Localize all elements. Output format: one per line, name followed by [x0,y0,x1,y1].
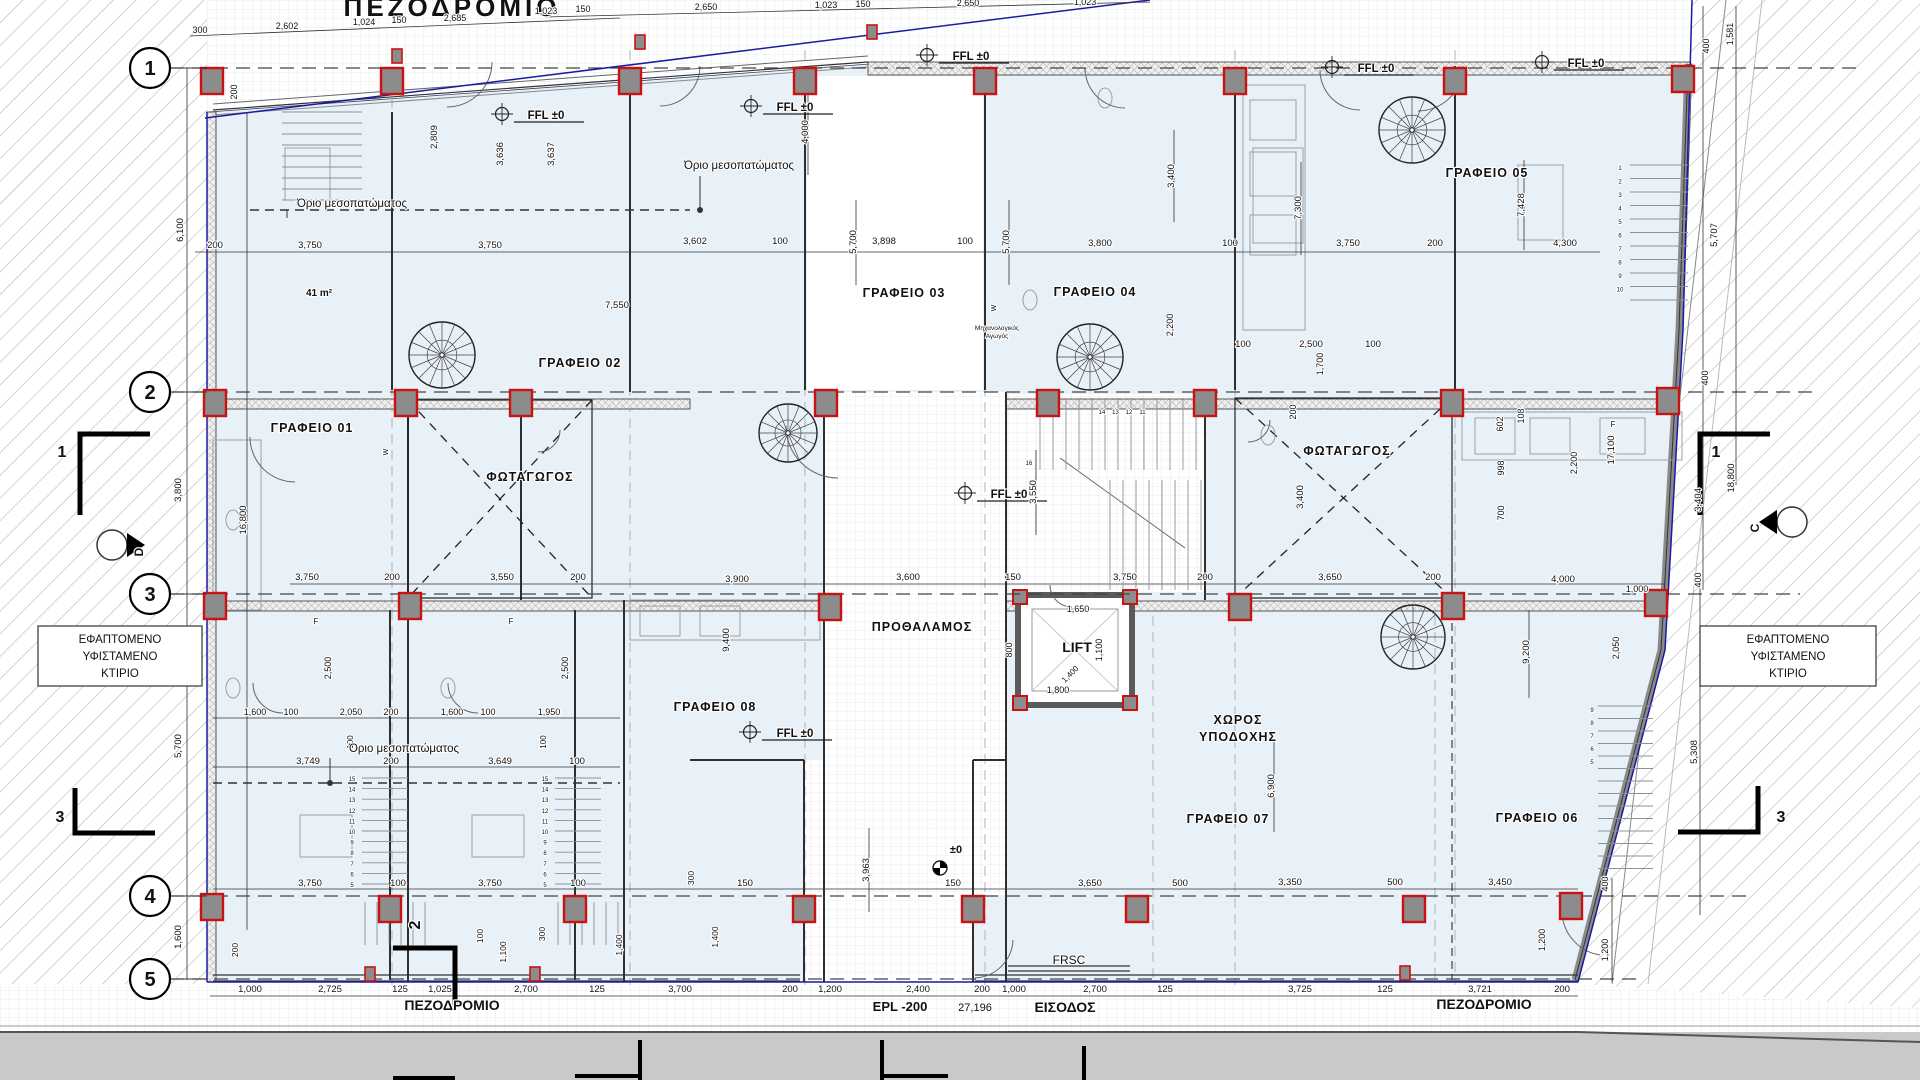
column [204,593,226,619]
dim-label: 150 [737,878,753,889]
dim-label: 3,721 [1468,984,1492,995]
dim-label: 1,023 [815,0,838,10]
dim-label: 1,200 [818,984,842,995]
dim-label: 125 [589,984,605,995]
dim-label: 2,500 [323,657,333,680]
column [379,896,401,922]
adjacent-building-label: ΥΦΙΣΤΑΜΕΝΟ [1751,651,1826,663]
column-small [530,967,540,981]
stair-number: 10 [349,830,356,836]
dim-label: 3,400 [1166,164,1177,188]
dim-label: 4,000 [800,120,811,144]
dim-label: 1,025 [428,984,452,995]
dim-label: 300 [686,871,696,885]
dim-label: F [509,617,514,626]
dim-label: 108 [1516,408,1526,423]
column [974,68,996,94]
dim-label: 1,400 [614,934,624,956]
floor-plan-drawing: 12345 1514131211109876515141312111098765… [0,0,1920,1080]
column [1126,896,1148,922]
dim-label: 200 [384,572,400,583]
mezzanine-note: Όριο μεσοπατώματος [683,160,795,172]
dim-label: 1,023 [1074,0,1097,7]
dim-label: 3,725 [1288,984,1312,995]
dim-label: 400 [1700,370,1710,385]
column [819,594,841,620]
spiral-stair [1057,324,1123,390]
dim-label: 300 [537,927,547,941]
dim-label: 150 [575,4,590,14]
dim-label: 125 [1377,984,1393,995]
dim-label: 6,100 [175,218,186,242]
level-label: FFL ±0 [528,110,565,122]
dim-label: 1,100 [498,941,508,963]
level-label: FFL ±0 [991,489,1028,501]
column [1560,893,1582,919]
dim-label: 2,200 [1165,314,1175,337]
dim-label: 2,602 [276,21,299,31]
level-label: FFL ±0 [1358,63,1395,75]
dim-label: 2,050 [1611,637,1621,660]
dim-label: 3,650 [1078,878,1102,889]
stair-number: 10 [1617,288,1624,294]
dim-label: F [1611,420,1616,429]
dim-label: 3,350 [1278,877,1302,888]
column [564,896,586,922]
dim-label: 100 [283,707,298,717]
column [1037,390,1059,416]
column [1441,390,1463,416]
street-label-br: ΠΕΖΟΔΡΟΜΙΟ [1436,996,1531,1012]
dim-label: 2,685 [444,13,467,23]
column [962,896,984,922]
dim-label: 3,602 [683,236,707,247]
dim-label: 2,700 [514,984,538,995]
dim-label: 1,650 [1067,604,1090,614]
dim-label: 1,800 [1047,685,1070,695]
svg-text:1: 1 [144,58,155,80]
column [381,68,403,94]
dim-label: 2,200 [1569,452,1579,475]
dim-label: 3,700 [668,984,692,995]
dim-label: 125 [392,984,408,995]
duct-note: Αγωγός [986,332,1009,340]
spiral-stair [759,404,817,462]
dim-label: 2,050 [340,707,363,717]
dim-label: 200 [1425,572,1441,583]
mezzanine-note: Όριο μεσοπατώματος [296,198,408,210]
dim-label: 200 [383,756,399,767]
dim-label: 400 [1600,876,1610,891]
dim-label: 5,700 [848,230,859,254]
dim-label: 3,750 [478,878,502,889]
dim-label: 200 [207,240,223,251]
spiral-stair [409,322,475,388]
street-label-bl: ΠΕΖΟΔΡΟΜΙΟ [404,997,499,1013]
dim-label: 150 [391,15,406,25]
dim-label: 3,749 [296,756,320,767]
dim-label: 3,800 [1088,238,1112,249]
level-label: FFL ±0 [777,728,814,740]
adjacent-building-label: ΕΦΑΠΤΟΜΕΝΟ [1747,634,1830,646]
stair-number: 15 [349,777,356,783]
dim-label: 100 [1235,339,1251,350]
room-label: ΓΡΑΦΕΙΟ 06 [1496,811,1579,825]
dim-label: 3,963 [861,858,872,882]
dim-label: 1,600 [244,707,267,717]
column [1403,896,1425,922]
dim-label: 9,400 [721,628,732,652]
dim-label: 3,750 [295,572,319,583]
room-label: ΓΡΑΦΕΙΟ 08 [674,700,757,714]
dim-label: 200 [1288,404,1298,419]
dim-label: 2,700 [1083,984,1107,995]
column [794,68,816,94]
dim-label: 1,200 [1537,929,1547,952]
column [1444,68,1466,94]
dim-label: 1,000 [1626,584,1649,594]
column [793,896,815,922]
duct-note: Μηχανολογικός [975,324,1019,332]
stair-number: 11 [1139,410,1146,416]
dim-label: 3,750 [478,240,502,251]
dim-label: 1,400 [710,926,720,948]
dim-label: 2,650 [957,0,980,8]
dim-label: 3,400 [1295,485,1306,509]
column-small [392,49,402,63]
column [1229,594,1251,620]
dim-label: 7,428 [1516,193,1527,217]
column [201,894,223,920]
dim-label: 500 [1387,877,1403,888]
dim-label: 3,800 [173,478,184,502]
dim-label: 100 [1365,339,1381,350]
dim-label: 800 [1004,642,1014,657]
dim-label: 3,636 [495,142,506,166]
dim-label: 3,900 [725,574,749,585]
adjacent-building-label: ΥΦΙΣΤΑΜΕΝΟ [83,651,158,663]
dim-label: 3,637 [546,142,557,166]
room-label: ΦΩΤΑΓΩΓΟΣ [486,470,573,484]
column-small [1400,966,1410,980]
stair-number: 12 [349,809,356,815]
adjacent-building-label: ΚΤΙΡΙΟ [1769,668,1807,680]
dim-label: 300 [192,25,207,35]
dim-label: 3,450 [1488,877,1512,888]
stair-number: 13 [1112,410,1119,416]
dim-label: 100 [480,707,495,717]
column [1657,388,1679,414]
frsc-label: FRSC [1053,953,1086,967]
dim-label: 400 [1701,38,1711,53]
dim-label: 150 [1005,572,1021,583]
column-small [365,967,375,981]
dim-label: 200 [1197,572,1213,583]
dim-label: 5,700 [1001,230,1012,254]
adjacent-building-label: ΚΤΙΡΙΟ [101,668,139,680]
room-label: ΦΩΤΑΓΩΓΟΣ [1303,444,1390,458]
dim-label: 150 [855,0,870,9]
dim-label: 1,023 [535,6,558,16]
column [204,390,226,416]
stair-number: 11 [349,819,356,825]
dim-label: 100 [570,878,586,889]
section-number: 1 [1712,444,1721,461]
dim-label: 200 [383,707,398,717]
dim-label: 1,024 [353,17,376,27]
dim-label: 1,200 [1600,939,1610,962]
dim-label: 1,100 [1094,639,1104,662]
svg-text:5: 5 [144,969,155,991]
dim-label: 200 [974,984,990,995]
dim-label: 7,300 [1293,196,1304,220]
dim-label: 4,300 [1553,238,1577,249]
room-label: ΓΡΑΦΕΙΟ 04 [1054,285,1137,299]
road [0,1032,1920,1080]
dim-label: 700 [1496,505,1506,520]
dim-label: 5,700 [173,734,184,758]
column [399,593,421,619]
stair-number: 10 [542,830,549,836]
benchmark-marker [933,861,947,875]
level-label: FFL ±0 [777,102,814,114]
dim-label: 2,809 [429,125,440,149]
dim-label: 18,800 [1726,463,1737,492]
column-small [867,25,877,39]
dim-label: 1,000 [238,984,262,995]
dim-label: W [991,304,998,311]
dim-label: 200 [1554,984,1570,995]
svg-text:3: 3 [144,584,155,606]
column [815,390,837,416]
stair-number: 13 [349,798,356,804]
svg-text:4: 4 [144,886,156,908]
level-label: FFL ±0 [953,51,990,63]
dim-label: 500 [1172,878,1188,889]
room-label: ΓΡΑΦΕΙΟ 01 [271,421,354,435]
entrance-level-label: EPL -200 [873,999,928,1014]
dim-label: 3,600 [896,572,920,583]
column-small [635,35,645,49]
column [1442,593,1464,619]
dim-label: 100 [772,236,788,247]
stair-number: 12 [542,809,549,815]
dim-label: 200 [230,943,240,957]
dim-label: 1,581 [1725,23,1735,46]
dim-label: 16 [1026,461,1033,467]
dim-label: 5,308 [1689,740,1700,764]
stair-number: 11 [542,819,549,825]
section-number: 1 [58,444,67,461]
section-number: 2 [407,920,424,929]
spiral-stair [1379,97,1445,163]
dim-label: 602 [1495,416,1505,431]
stair-number: 13 [542,798,549,804]
room-label: ΧΩΡΟΣ [1214,713,1263,727]
spiral-stair [1381,605,1445,669]
dim-label: 125 [1157,984,1173,995]
dim-label: 100 [390,878,406,889]
stair-number: 14 [349,788,356,794]
dim-label: 1,700 [1315,353,1325,376]
section-letter: D [132,547,146,556]
room-label: ΠΡΟΘΑΛΑΜΟΣ [872,620,973,634]
dim-label: 6,900 [1266,774,1277,798]
section-number: 3 [56,809,65,826]
dim-label: 3,649 [488,756,512,767]
dim-label: 16,800 [238,505,249,534]
dim-label: 150 [945,878,961,889]
stair-number: 14 [542,788,549,794]
dim-label: 1,600 [173,925,184,949]
dim-label: 9,200 [1521,640,1532,664]
office-03-floor [807,76,983,390]
column [395,390,417,416]
room-label: ΓΡΑΦΕΙΟ 07 [1187,812,1270,826]
area-label: 41 m² [306,288,333,299]
dim-label: 1,600 [441,707,464,717]
dim-label: 17,100 [1606,435,1617,464]
section-number: 3 [1777,809,1786,826]
dim-label: 998 [1496,460,1506,475]
overall-dim: 27,196 [958,1002,992,1014]
dim-label: 3,750 [298,878,322,889]
dim-label: 2,500 [560,657,570,680]
dim-label: 5,707 [1709,223,1720,247]
adjacent-building-label: ΕΦΑΠΤΟΜΕΝΟ [79,634,162,646]
dim-label: 7,550 [605,300,629,311]
dim-label: 200 [570,572,586,583]
dim-label: 100 [475,929,485,943]
dim-label: W [383,448,390,455]
room-label: ΓΡΑΦΕΙΟ 02 [539,356,622,370]
column [1645,590,1667,616]
dim-label: 1,950 [538,707,561,717]
dim-label: 3,750 [298,240,322,251]
entrance-floor [804,760,973,982]
room-label: ΓΡΑΦΕΙΟ 05 [1446,166,1529,180]
room-label: ΓΡΑΦΕΙΟ 03 [863,286,946,300]
dim-label: 3,750 [1113,572,1137,583]
room-label: ΥΠΟΔΟΧΗΣ [1199,730,1277,744]
dim-label: 3,750 [1336,238,1360,249]
entrance-label: ΕΙΣΟΔΟΣ [1034,999,1095,1015]
level-label: ±0 [950,844,962,856]
stair-number: 12 [1126,410,1133,416]
dim-label: 4,000 [1551,574,1575,585]
dim-label: 100 [957,236,973,247]
stair-number: 14 [1099,410,1106,416]
column [1224,68,1246,94]
stair-number: 15 [542,777,549,783]
dim-label: 1,000 [1002,984,1026,995]
lift-label: LIFT [1062,639,1092,655]
dim-label: 2,650 [695,2,718,12]
dim-label: 2,725 [318,984,342,995]
dim-label: 200 [782,984,798,995]
dim-label: 100 [1222,238,1238,249]
dim-label: 3,550 [490,572,514,583]
mezzanine-note: Όριο μεσοπατώματος [348,743,460,755]
dim-label: 100 [569,756,585,767]
dim-label: F [314,617,319,626]
column [1672,66,1694,92]
column [1194,390,1216,416]
section-letter: C [1748,523,1762,532]
column [201,68,223,94]
level-label: FFL ±0 [1568,58,1605,70]
svg-text:2: 2 [144,382,155,404]
dim-label: 3,898 [872,236,896,247]
dim-label: 2,500 [1299,339,1323,350]
column [510,390,532,416]
dim-label: 3,404 [1693,488,1704,512]
dim-label: 2,400 [906,984,930,995]
dim-label: 100 [539,735,548,749]
column [619,68,641,94]
dim-label: 200 [1427,238,1443,249]
dim-label: 400 [1693,572,1703,587]
dim-label: 200 [229,84,239,99]
dim-label: 3,650 [1318,572,1342,583]
dim-label: 3,550 [1028,480,1039,504]
